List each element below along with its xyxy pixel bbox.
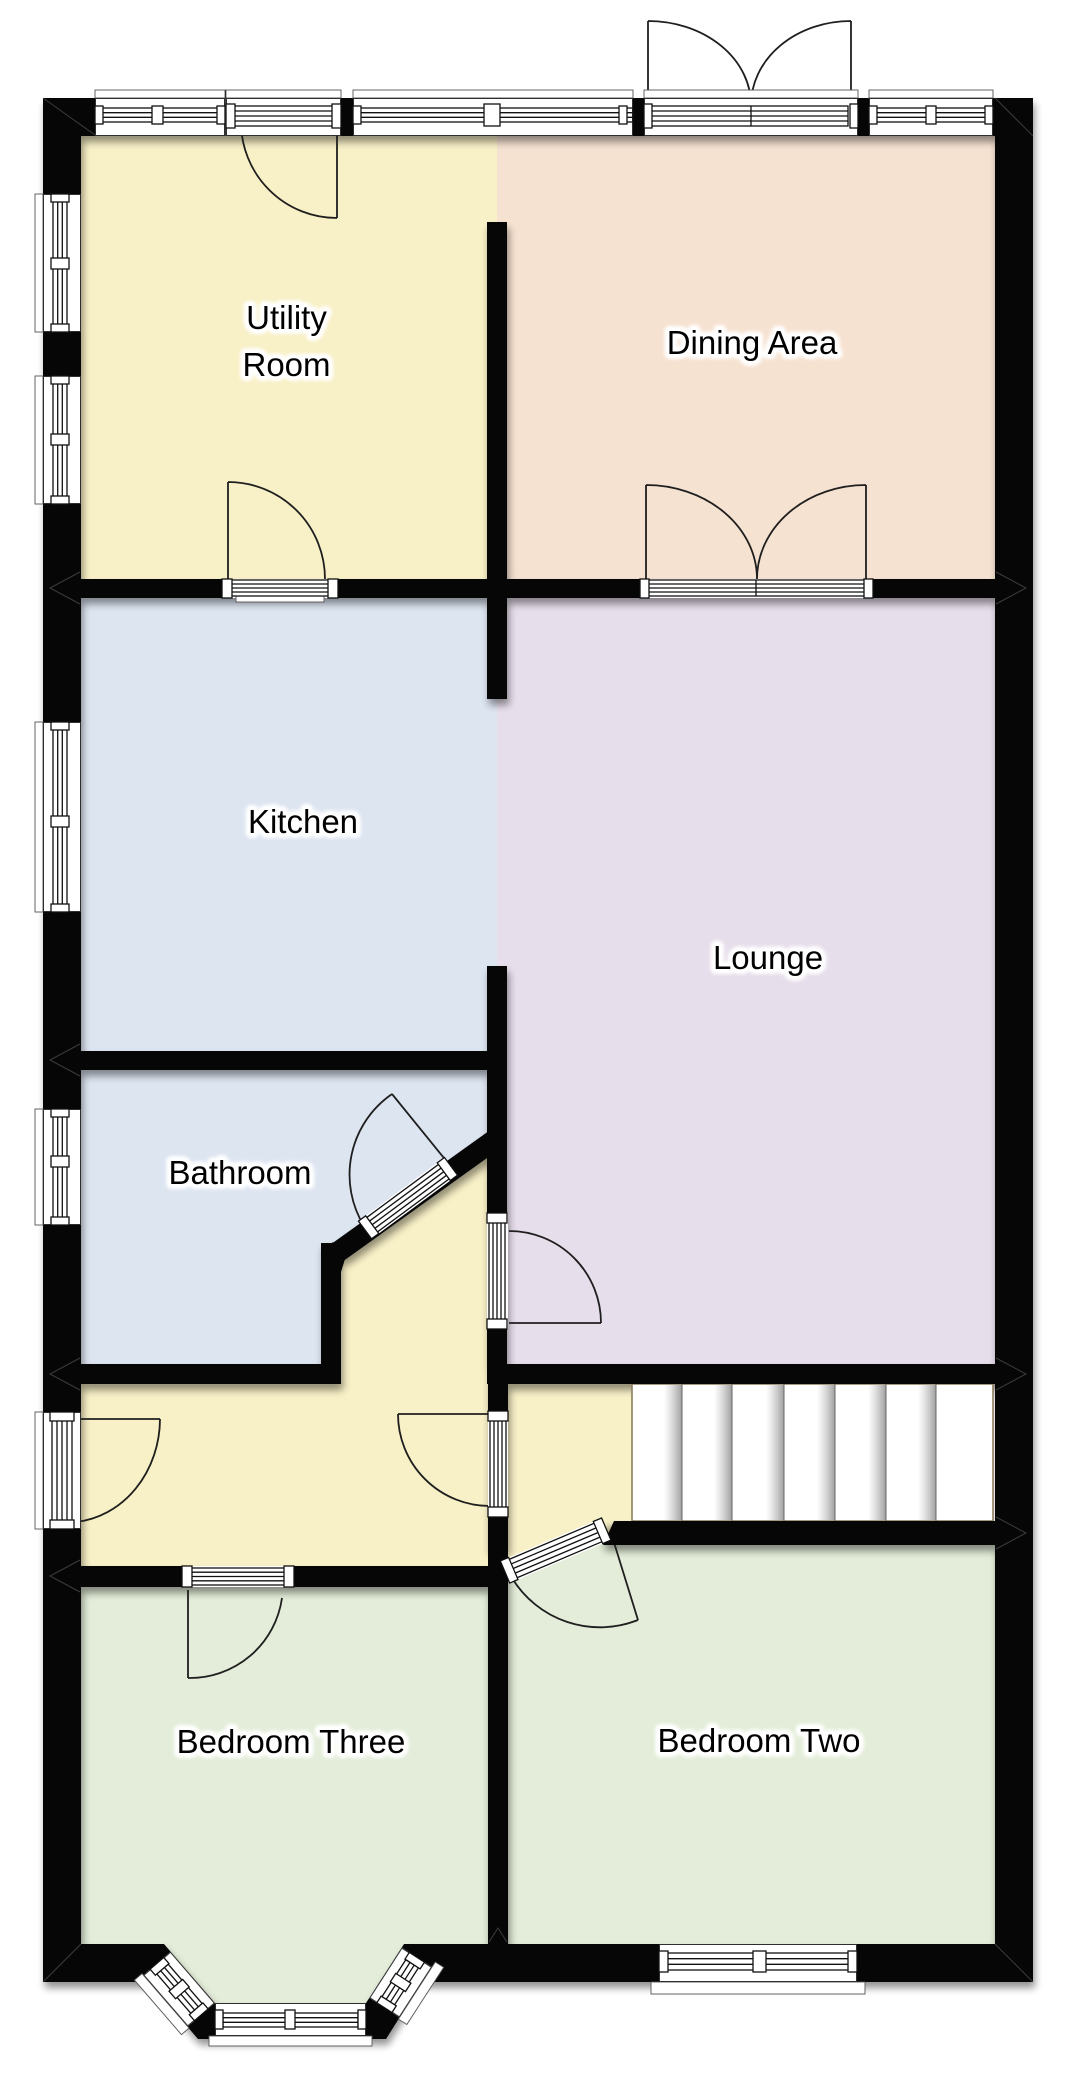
svg-text:Kitchen: Kitchen	[248, 803, 358, 840]
svg-text:Room: Room	[242, 346, 330, 383]
svg-text:Utility: Utility	[246, 299, 327, 336]
svg-text:Bathroom: Bathroom	[168, 1154, 311, 1191]
svg-text:Lounge: Lounge	[713, 939, 823, 976]
svg-text:Dining Area: Dining Area	[667, 324, 838, 361]
svg-text:Bedroom Two: Bedroom Two	[658, 1722, 861, 1759]
svg-text:Bedroom Three: Bedroom Three	[177, 1723, 406, 1760]
